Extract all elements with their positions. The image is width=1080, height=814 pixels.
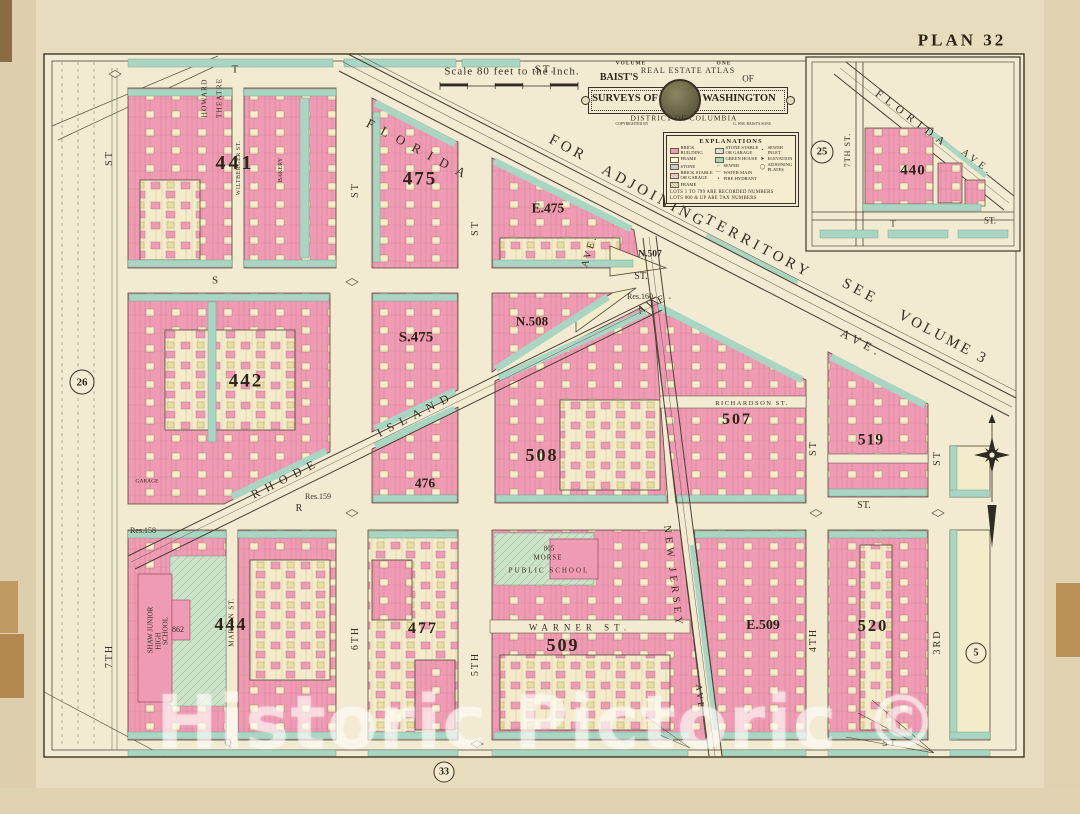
street-label-5th-st: ST: [471, 220, 481, 236]
block-number-440-inset: 440: [900, 164, 926, 179]
watermark: Historic Pictoric ©: [156, 680, 939, 766]
street-label-r: R: [296, 504, 303, 514]
block-number-n507: N.507: [638, 250, 662, 260]
block-number-509: 509: [547, 636, 580, 654]
reservation-158: Res.158: [130, 527, 156, 535]
street-label-7th: 7TH: [105, 644, 115, 668]
stone-swatch-icon: [670, 164, 679, 170]
brick-stable-swatch-icon: [670, 173, 679, 179]
plate-ref-25: 25: [811, 141, 834, 164]
legend-label: FIRE HYDRANT: [724, 177, 758, 182]
sewer-icon: ⌐: [715, 164, 722, 169]
block-number-475: 475: [403, 170, 438, 189]
plate-ref-26-number: 26: [77, 376, 88, 388]
stone-stable-swatch-icon: [715, 148, 724, 154]
poi-bakery: BAKERY: [278, 158, 284, 182]
plate-ref-33-number: 33: [439, 767, 449, 778]
street-label-richardson: RICHARDSON ST.: [715, 401, 789, 408]
street-label-t-st: ST.: [535, 65, 556, 76]
legend-label: BRICK STABLE OR GARAGE: [681, 171, 716, 181]
legend-title: EXPLANATIONS: [670, 138, 792, 145]
frame-stable-swatch-icon: [670, 182, 679, 188]
plate-ref-26: 26: [70, 370, 95, 395]
street-label-5th: 5TH: [471, 652, 481, 676]
legend-label: ADJOINING PLATES: [768, 163, 793, 173]
inset-label-7th: 7TH ST.: [844, 133, 852, 167]
street-label-t: T: [232, 65, 243, 76]
cartouche-district: DISTRICT OF COLUMBIA: [631, 114, 738, 122]
reservation-159: Res.159: [305, 493, 331, 501]
poi-howard: HOWARD: [200, 79, 208, 118]
block-number-520: 520: [858, 618, 889, 635]
street-label-4th-st: ST: [809, 440, 819, 456]
cartouche-of: OF: [742, 75, 754, 84]
tape-left-1: [0, 581, 18, 633]
block-number-442: 442: [229, 372, 264, 391]
poi-garage: GARAGE: [136, 479, 159, 485]
cartouche-knob-right: [786, 96, 795, 105]
atlas-map-page: PLAN 32 Scale 80 feet to the Inch. VOLUM…: [0, 0, 1080, 814]
street-label-r-st: ST.: [857, 501, 870, 511]
legend-label: BRICK BUILDING: [681, 146, 716, 156]
explanations-legend: EXPLANATIONS BRICK BUILDING FRAME STONE …: [666, 135, 796, 204]
cartouche-knob-left: [581, 96, 590, 105]
legend-label: SEWER: [724, 164, 740, 169]
block-number-508: 508: [526, 446, 559, 464]
street-label-4th: 4TH: [809, 628, 819, 652]
block-number-e509: E.509: [746, 619, 780, 633]
legend-label: FRAME: [681, 183, 697, 188]
street-label-3rd-st: ST: [933, 450, 943, 466]
cartouche-publisher: G. WM. BAIST'S SONS: [733, 123, 771, 127]
poi-school-morse: MORSE: [533, 555, 562, 562]
adjoining-plates-icon: ◯: [759, 165, 766, 170]
reservation-160: Res.160: [627, 293, 653, 301]
legend-note-2: LOTS 800 & UP ARE TAX NUMBERS: [670, 196, 792, 201]
poi-theatre: THEATRE: [215, 78, 223, 118]
inset-label-t: T: [890, 220, 896, 229]
block-number-477: 477: [408, 621, 438, 637]
legend-note-1: LOTS 1 TO 799 ARE RECORDED NUMBERS: [670, 190, 792, 195]
frame-swatch-icon: [670, 157, 679, 163]
block-number-519: 519: [858, 432, 884, 448]
cartouche-surveys: SURVEYS OF: [592, 94, 658, 105]
legend-label: SEWER INLET: [768, 146, 791, 156]
poi-shaw-junior: SHAW JUNIOR: [148, 607, 155, 654]
block-441-east: [244, 88, 336, 268]
fire-hydrant-icon: •: [715, 177, 722, 182]
block-number-n508: N.508: [516, 315, 548, 328]
legend-label: GREEN HOUSE: [726, 157, 758, 162]
tape-right: [1056, 583, 1080, 657]
brick-swatch-icon: [670, 148, 679, 154]
elevation-icon: ➤: [759, 157, 766, 162]
poi-school-805: 805: [544, 546, 555, 553]
tape-top-left: [0, 0, 12, 62]
plate-ref-5-number: 5: [974, 648, 979, 659]
plan-number: PLAN 32: [918, 32, 1007, 49]
street-label-6th-st: ST: [351, 182, 361, 198]
block-number-476: 476: [415, 476, 435, 490]
plate-ref-5: 5: [966, 643, 987, 664]
legend-label: WATER MAIN: [724, 171, 753, 176]
block-number-444: 444: [215, 615, 248, 633]
legend-label: ELEVATION: [768, 157, 793, 162]
greenhouse-swatch-icon: [715, 157, 724, 163]
cartouche-washington: WASHINGTON: [702, 94, 775, 105]
block-number-e475: E.475: [532, 201, 565, 215]
block-number-441: 441: [216, 153, 255, 173]
scale-text: Scale 80 feet to the Inch.: [444, 67, 579, 78]
street-label-warner: WARNER ST.: [529, 624, 631, 633]
legend-label: STONE: [681, 165, 696, 170]
cartouche-baists: BAIST'S: [600, 73, 638, 83]
water-main-icon: ―: [715, 170, 722, 175]
block-number-507: 507: [722, 412, 752, 428]
street-label-7th-st: ST: [105, 150, 115, 166]
sewer-inlet-icon: ▪: [759, 148, 766, 153]
plate-ref-25-number: 25: [817, 147, 828, 158]
street-label-s-st: ST.: [634, 272, 647, 282]
lot-number-862: 862: [172, 626, 184, 634]
street-label-3rd: 3RD: [933, 630, 943, 655]
inset-label-t-st: ST.: [984, 217, 996, 226]
cartouche-copyright: COPYRIGHTED BY: [615, 123, 648, 127]
block-519-alley: [828, 454, 928, 463]
legend-label: FRAME: [681, 157, 697, 162]
block-number-s475: S.475: [399, 331, 434, 346]
legend-label: STONE STABLE OR GARAGE: [726, 146, 760, 156]
tape-left-2: [0, 634, 24, 698]
poi-shaw-school: SCHOOL: [163, 617, 170, 645]
cartouche-atlas: REAL ESTATE ATLAS: [641, 67, 735, 75]
street-label-s: S: [212, 276, 218, 287]
poi-public-school: PUBLIC SCHOOL: [509, 568, 590, 575]
street-label-6th: 6TH: [351, 626, 361, 650]
